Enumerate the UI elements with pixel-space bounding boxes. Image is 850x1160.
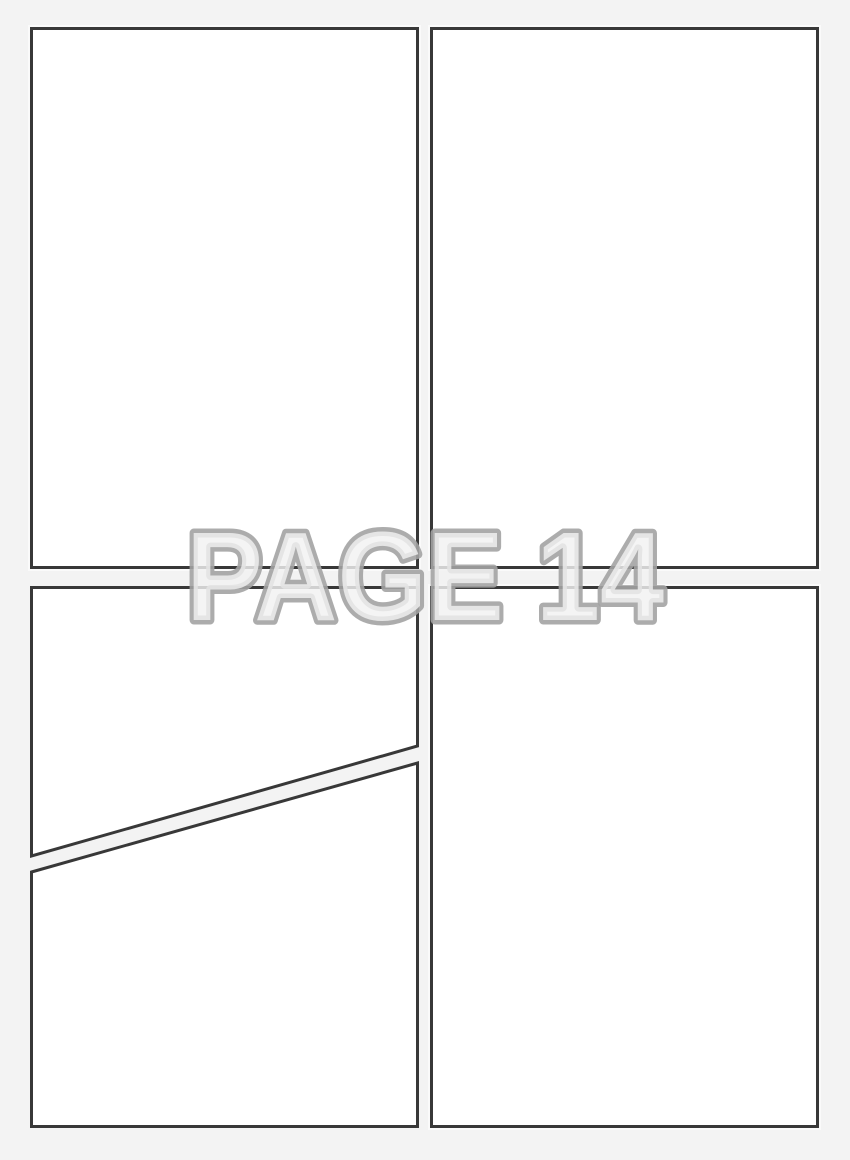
comic-panel-top-right (430, 27, 819, 569)
diagonal-split-panels (30, 586, 419, 1128)
comic-page-template: PAGE 14 (0, 0, 850, 1160)
comic-panel-bottom-left-group (30, 586, 419, 1128)
comic-panel-bottom-right (430, 586, 819, 1128)
comic-panel-top-left (30, 27, 419, 569)
